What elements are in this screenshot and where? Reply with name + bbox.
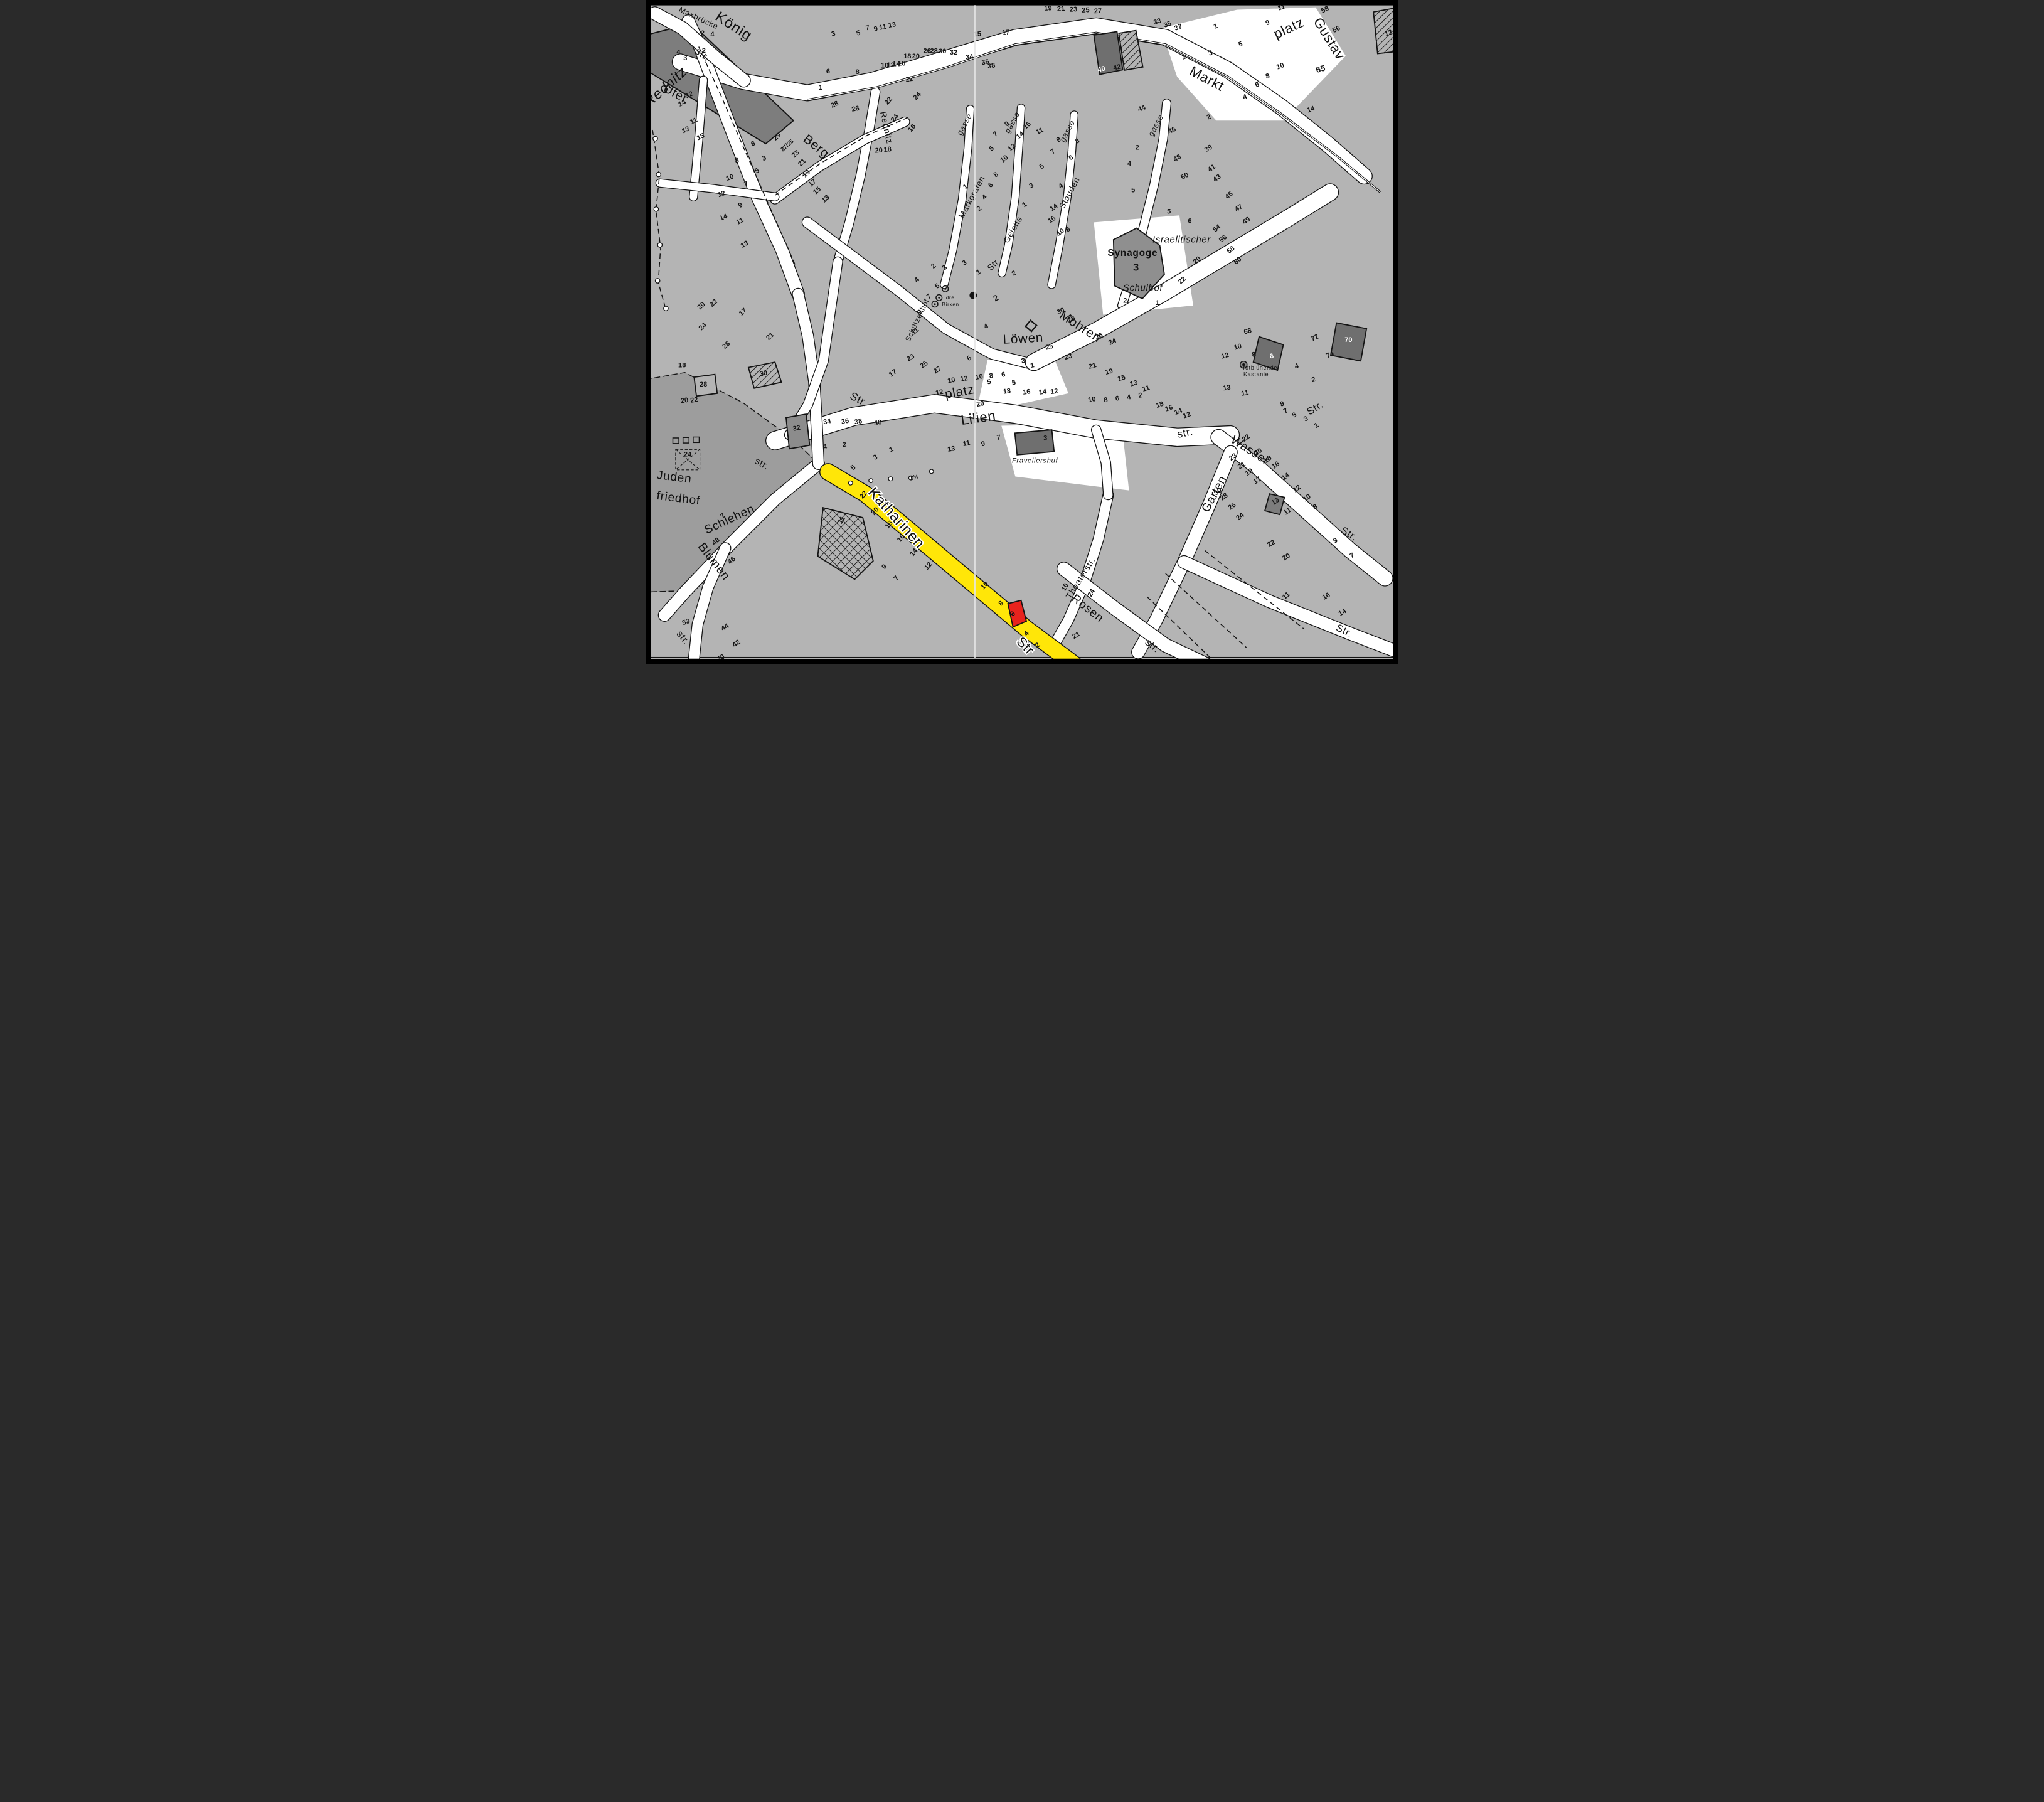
house-number-23: 23 (1070, 6, 1078, 14)
house-number-22: 22 (689, 396, 698, 405)
house-number-38: 38 (854, 417, 863, 426)
fence-post-icon (929, 469, 934, 474)
house-number-30: 30 (759, 369, 769, 378)
house-number-20: 20 (976, 400, 984, 408)
house-number-3: 3 (683, 55, 687, 62)
house-number-2: 2 (1136, 144, 1139, 151)
house-number-6: 6 (826, 68, 830, 75)
house-number-20: 20 (875, 147, 883, 155)
house-number-20: 20 (680, 397, 689, 405)
house-number-4: 4 (676, 49, 681, 56)
house-number-4: 4 (710, 31, 715, 38)
wall-post-icon (664, 306, 668, 311)
birke-tree-icon-dot (938, 297, 940, 299)
house-number-12: 12 (960, 375, 969, 383)
house-number-32: 32 (792, 424, 801, 433)
birke-tree-icon-dot (944, 288, 946, 290)
house-number-10: 10 (1087, 395, 1096, 404)
house-number-17: 17 (1002, 29, 1010, 37)
house-number-4: 4 (1127, 160, 1132, 168)
house-number-12: 12 (935, 388, 944, 397)
house-number-11: 11 (878, 23, 887, 32)
house-number-13: 13 (1222, 383, 1231, 392)
city-map-scan: 3579111315171921232527333537124243681282… (646, 0, 1398, 664)
house-number-28: 28 (700, 381, 707, 388)
map-sheet: 3579111315171921232527333537124243681282… (646, 0, 1398, 664)
fence-post-icon (869, 479, 873, 483)
house-number-40: 40 (1097, 65, 1107, 73)
street-label-kastanie: Kastanie (1243, 371, 1269, 377)
house-number-18: 18 (903, 53, 911, 60)
house-number-1: 1 (1156, 299, 1159, 307)
house-number-16: 16 (898, 60, 905, 68)
street-label-birken: Birken (942, 302, 959, 307)
house-number-5: 5 (1131, 186, 1135, 194)
birke-tree-icon-dot (934, 303, 936, 305)
house-number-2: 2 (701, 29, 705, 37)
house-number-18: 18 (678, 362, 686, 370)
house-number-70: 70 (1344, 336, 1352, 344)
house-number-32: 32 (950, 49, 957, 56)
house-number-28: 28 (930, 47, 938, 55)
house-number-18: 18 (883, 146, 892, 154)
house-number-3: 3 (1133, 262, 1139, 274)
house-number-27: 27 (1094, 8, 1102, 16)
house-number-16: 16 (1022, 388, 1031, 397)
house-number-3: 3 (1043, 435, 1047, 442)
house-number-21: 21 (1057, 5, 1065, 13)
wall-post-icon (656, 172, 661, 176)
house-number-10: 10 (947, 376, 955, 385)
tree-dot-icon (969, 292, 977, 299)
house-number-12: 12 (1050, 387, 1059, 396)
street-label-l-wen: Löwen (1003, 331, 1044, 347)
street-label-synagoge: Synagoge (1108, 248, 1158, 259)
house-number-25: 25 (1082, 6, 1090, 14)
street-label-fraveliershuf: Fraveliershuf (1012, 457, 1059, 464)
house-number-42: 42 (1112, 63, 1122, 72)
street-label-schulhof: Schulhof (1123, 283, 1163, 293)
fence-post-icon (888, 477, 893, 481)
house-number-40: 40 (873, 419, 882, 427)
house-number-8: 8 (856, 68, 860, 76)
wall-post-icon (655, 279, 659, 283)
house-number-26: 26 (923, 47, 930, 55)
house-number-10: 10 (975, 373, 984, 381)
house-number-13: 13 (888, 21, 897, 29)
wall-post-icon (657, 243, 662, 247)
house-number-1: 1 (819, 84, 822, 92)
house-number-24: 24 (684, 450, 692, 458)
fence-post-icon (848, 481, 853, 485)
wall-post-icon (654, 207, 658, 211)
wall-post-icon (653, 136, 657, 141)
house-number-20: 20 (912, 53, 920, 60)
house-number-30: 30 (939, 48, 946, 55)
house-number-13: 13 (947, 445, 955, 454)
house-number-2: 2 (1123, 297, 1127, 304)
house-number-5: 5 (1167, 208, 1171, 216)
house-number-11: 11 (1240, 389, 1249, 398)
house-number-26: 26 (851, 105, 860, 114)
house-number-36: 36 (841, 417, 849, 426)
house-number-22: 22 (905, 75, 913, 84)
house-number-18: 18 (1003, 387, 1011, 396)
street-label-israelitischer: Israelitischer (1152, 235, 1211, 245)
house-number-38: 38 (987, 61, 996, 70)
house-number-6: 6 (1188, 217, 1191, 225)
street-label-rotbl-hende: rotblühende (1243, 365, 1277, 371)
building-3-fravelier (1015, 430, 1055, 455)
house-number-19: 19 (1044, 4, 1052, 13)
street-label-drei: drei (946, 295, 956, 301)
house-number-11: 11 (962, 439, 971, 448)
